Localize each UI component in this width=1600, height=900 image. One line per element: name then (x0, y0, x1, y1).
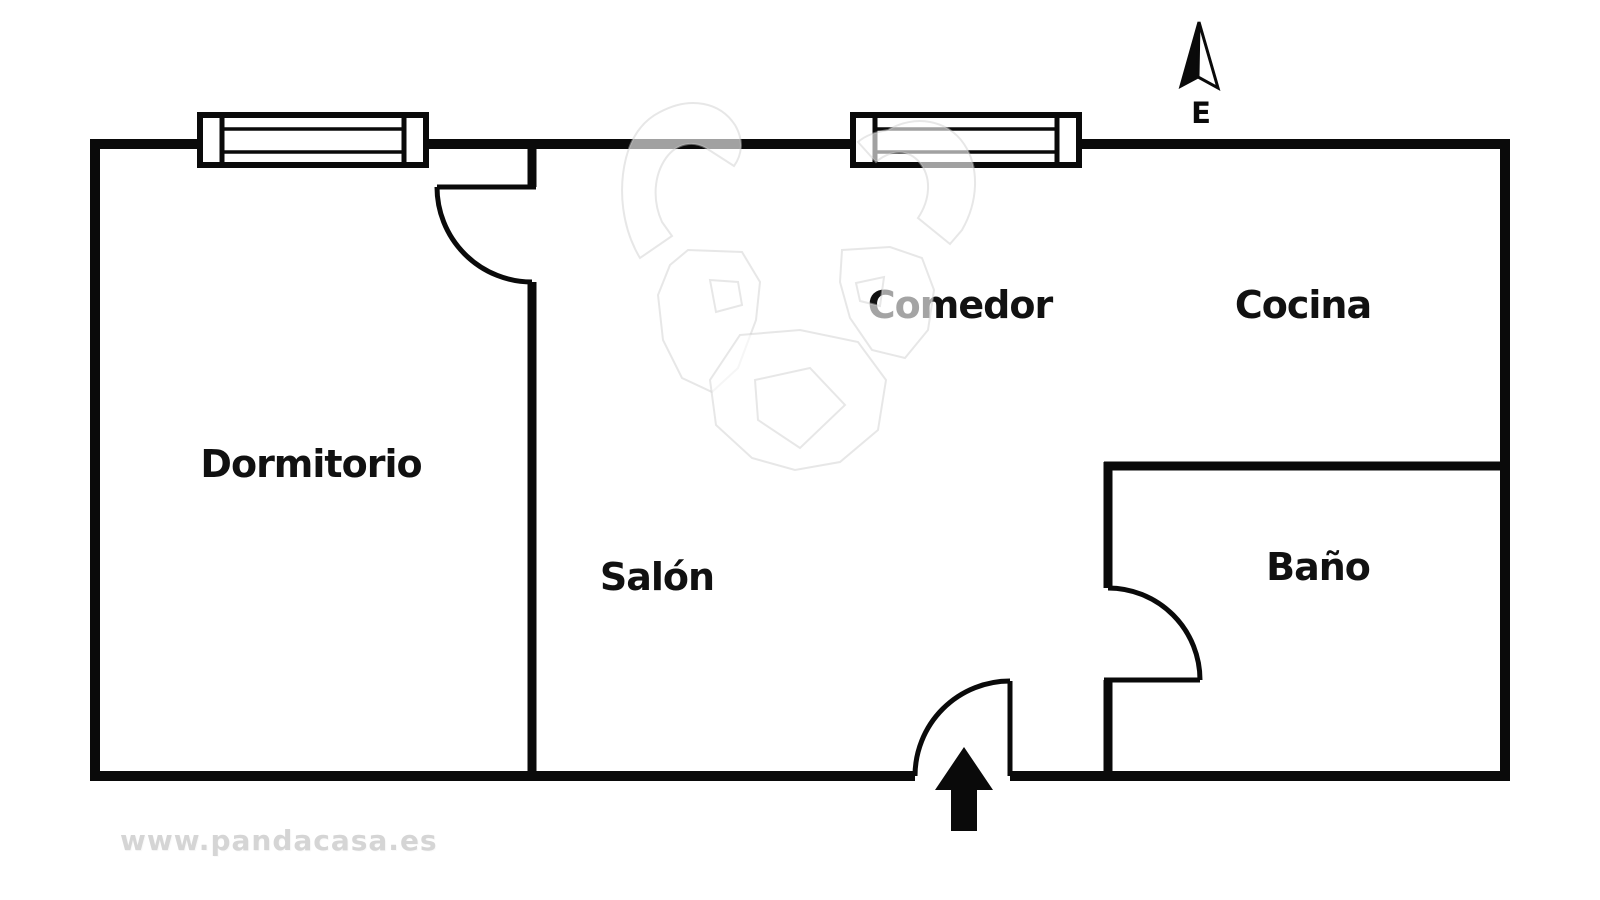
window-dormitorio-icon (200, 115, 426, 165)
north-arrow-light-half (1198, 22, 1218, 88)
north-arrow-icon: E (1181, 22, 1218, 130)
room-label-dormitorio: Dormitorio (200, 442, 421, 486)
compass-label: E (1191, 96, 1211, 130)
door-swing-arc (1108, 588, 1200, 680)
panda-right-ear (858, 121, 975, 244)
door-dormitorio (437, 187, 536, 282)
door-bano (1104, 588, 1200, 680)
panda-muzzle (710, 330, 886, 470)
floor-plan-canvas: E Dormitorio Salón Comedor Cocina Baño w… (0, 0, 1600, 900)
window-frame (200, 115, 426, 165)
panda-logo-watermark (622, 103, 975, 470)
room-label-cocina: Cocina (1235, 283, 1371, 327)
entrance-arrow-icon (935, 747, 993, 831)
watermark-url: www.pandacasa.es (120, 824, 438, 857)
room-label-bano: Baño (1266, 545, 1370, 589)
floor-plan: E Dormitorio Salón Comedor Cocina Baño (0, 0, 1600, 900)
north-arrow-dark-half (1181, 22, 1199, 86)
panda-left-ear (622, 103, 741, 258)
room-label-salon: Salón (600, 555, 714, 599)
door-swing-arc (437, 187, 532, 282)
